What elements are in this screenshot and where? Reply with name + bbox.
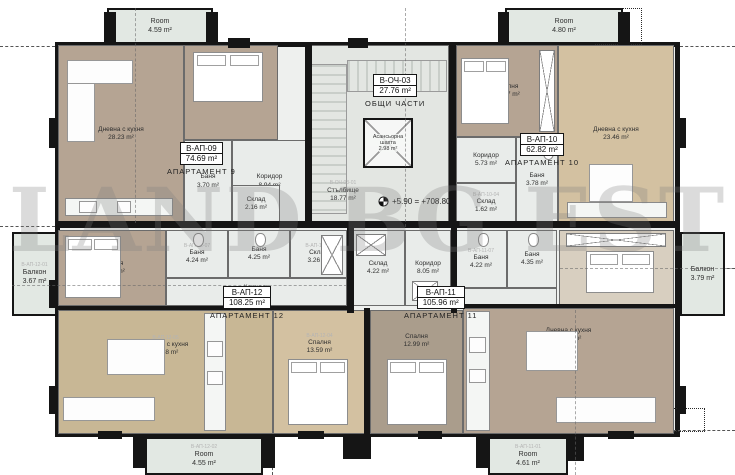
sofa xyxy=(63,397,155,421)
sofa xyxy=(67,60,133,84)
room-bath2-apt11: Баня 4.35 m² xyxy=(507,230,557,288)
apt10-header: В-АП-10 62.82 m² АПАРТАМЕНТ 10 xyxy=(505,133,579,167)
apt12-header: В-АП-12 108.25 m² АПАРТАМЕНТ 12 xyxy=(210,286,284,320)
balcony-bottom-right: В-АП-11-01 Room 4.61 m² xyxy=(488,437,568,475)
axis-line xyxy=(0,46,55,47)
stairs-label: В-ОЧ-03-01 Стълбище 18.77 m² xyxy=(312,180,374,203)
toilet xyxy=(255,233,266,247)
wardrobe xyxy=(566,233,666,247)
dining-table xyxy=(526,331,578,371)
room-living-apt11: Дневна с кухня 33.70 m² xyxy=(463,308,674,434)
room-storage-apt10: В-АП-10-04 Склад 1.62 m² xyxy=(456,183,516,223)
toilet xyxy=(193,233,204,247)
wall xyxy=(305,45,312,228)
wall-pier xyxy=(263,435,275,468)
stove xyxy=(207,341,223,357)
column xyxy=(298,431,324,439)
column xyxy=(49,118,57,148)
room-bath2-apt12: Баня 4.25 m² xyxy=(228,230,290,278)
wall xyxy=(364,308,370,437)
sink xyxy=(207,371,223,385)
bed xyxy=(387,359,447,425)
axis-line xyxy=(0,226,55,227)
balcony-right: Балкон 3.79 m² xyxy=(680,232,725,316)
column xyxy=(608,431,634,439)
sink xyxy=(79,201,97,213)
floor-plan: Дневна с кухня 28.23 m² Спалня 14.95 m² … xyxy=(0,0,735,475)
bed xyxy=(461,58,509,124)
room-bath1-apt11: В-АП-11-07 Баня 4.22 m² xyxy=(455,230,507,288)
room-bedroom-apt10: Спалня 12.67 m² xyxy=(456,45,558,137)
column xyxy=(678,386,686,414)
room-bedroom2-apt11: Спалня 12.99 m² xyxy=(370,310,463,434)
bed xyxy=(586,251,654,293)
closet xyxy=(356,234,386,256)
wall xyxy=(55,306,353,310)
wall-pier xyxy=(343,435,371,459)
wall-pier xyxy=(104,12,116,45)
toilet xyxy=(528,233,539,247)
dining-table xyxy=(107,339,165,375)
section-line xyxy=(12,285,347,286)
wardrobe xyxy=(539,50,555,132)
stove xyxy=(469,337,486,353)
column xyxy=(49,386,57,414)
room-bath1-apt12: В-АП-12-07 Баня 4.24 m² xyxy=(166,230,228,278)
dining-table xyxy=(589,164,633,202)
room-storage-apt12: В-АП-12-03 Склад 3.26 m² xyxy=(290,230,347,278)
bed xyxy=(65,236,121,298)
column xyxy=(228,38,250,48)
section-line xyxy=(135,8,136,223)
section-line xyxy=(560,268,733,269)
sink xyxy=(469,369,486,383)
elevation-marker: +5.90 = +708.80 xyxy=(378,196,451,207)
room-living-apt9: Дневна с кухня 28.23 m² xyxy=(58,45,184,223)
room-storage-apt9: Склад 2.16 m² xyxy=(232,185,280,223)
wall xyxy=(347,221,354,313)
wall-pier xyxy=(133,435,145,468)
section-line xyxy=(405,8,406,227)
balcony-top-left: Room 4.59 m² xyxy=(107,8,213,44)
elevation-value: +5.90 = +708.80 xyxy=(392,197,451,206)
common-header: В-ОЧ-03 27.76 m² ОБЩИ ЧАСТИ xyxy=(365,74,425,108)
section-line xyxy=(575,310,576,475)
wall xyxy=(55,221,680,228)
room-living-apt12: В-АП-12-05 Дневна с кухня 33.68 m² xyxy=(58,310,273,434)
axis-line xyxy=(680,46,735,47)
room-bedroom-apt9: Спалня 14.95 m² xyxy=(184,45,278,140)
bed xyxy=(193,52,263,102)
column xyxy=(418,431,442,439)
wall-pier xyxy=(206,12,218,45)
kitchen-counter xyxy=(567,202,667,218)
wall-pier xyxy=(498,12,509,45)
bed xyxy=(288,359,348,425)
wall-pier xyxy=(618,12,630,45)
column xyxy=(98,431,122,439)
wall-pier xyxy=(568,435,584,461)
room-storage-apt11: Склад 4.22 m² xyxy=(351,230,405,306)
room-bedroom1-apt12: В-АП-12-04 Спалня 13.59 m² xyxy=(273,310,366,434)
column xyxy=(348,38,368,48)
wall-pier xyxy=(476,435,488,468)
stove xyxy=(117,201,131,213)
apt9-header: В-АП-09 74.69 m² АПАРТАМЕНТ 9 xyxy=(167,142,236,176)
balcony-top-right: Room 4.80 m² xyxy=(505,8,623,44)
toilet xyxy=(478,233,489,247)
sofa xyxy=(556,397,656,423)
apt11-header: В-АП-11 105.96 m² АПАРТАМЕНТ 11 xyxy=(404,286,477,320)
balcony-bottom-left: В-АП-12-02 Room 4.55 m² xyxy=(145,437,263,475)
room-bedroom2-apt12: Спалня 14.90 m² xyxy=(58,230,166,306)
level-marker-icon xyxy=(378,196,389,207)
wall xyxy=(453,304,680,308)
closet xyxy=(321,235,343,275)
column xyxy=(678,118,686,148)
